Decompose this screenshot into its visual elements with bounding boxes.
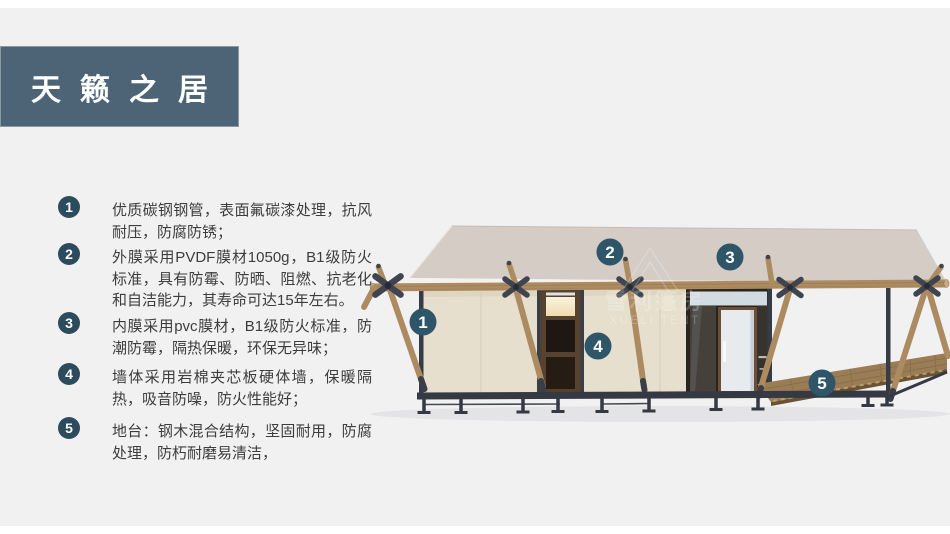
tent-illustration: 雪利篷房 XUELI TENT 1 2 3 4 5 [0,0,950,534]
svg-text:1: 1 [418,313,427,332]
roof-canopy [410,226,947,286]
watermark-cn: 雪利篷房 [605,289,705,314]
callout-5: 5 [809,370,836,397]
deck-platform [757,353,947,406]
metal-post-right [886,288,891,398]
callout-3: 3 [717,244,744,271]
callout-2: 2 [597,239,624,266]
svg-text:2: 2 [605,243,614,262]
callout-1: 1 [410,309,437,336]
svg-text:4: 4 [593,337,603,356]
callout-4: 4 [585,333,612,360]
svg-text:5: 5 [817,374,826,393]
svg-text:3: 3 [725,248,734,267]
watermark-en: XUELI TENT [609,315,700,327]
